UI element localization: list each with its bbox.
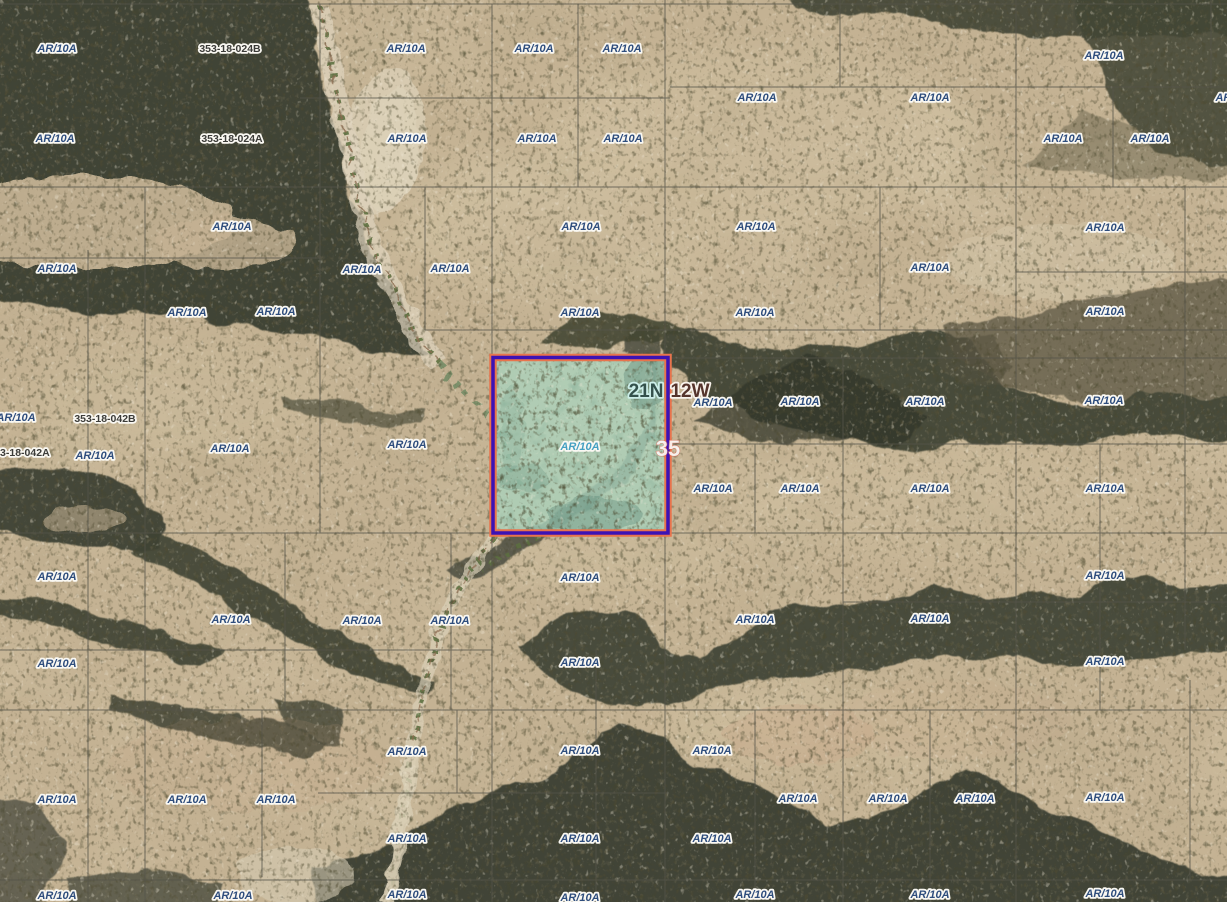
svg-text:AR/10A: AR/10A [34, 133, 74, 145]
svg-text:353-18-042A: 353-18-042A [0, 447, 50, 459]
svg-text:AR/10A: AR/10A [513, 43, 553, 55]
svg-text:AR/10A: AR/10A [735, 221, 775, 233]
svg-text:AR/10A: AR/10A [867, 793, 907, 805]
svg-text:AR/10A: AR/10A [779, 396, 819, 408]
svg-text:AR/10A: AR/10A [559, 833, 599, 845]
svg-text:353-18-024A: 353-18-024A [201, 133, 263, 145]
svg-text:AR/10A: AR/10A [734, 307, 774, 319]
svg-text:AR/10A: AR/10A [602, 133, 642, 145]
svg-text:AR/10A: AR/10A [386, 439, 426, 451]
svg-text:AR/10A: AR/10A [777, 793, 817, 805]
svg-text:AR/10A: AR/10A [560, 221, 600, 233]
svg-text:AR/10A: AR/10A [386, 889, 426, 901]
svg-text:AR/10A: AR/10A [429, 263, 469, 275]
svg-text:AR/10A: AR/10A [904, 396, 944, 408]
svg-text:AR/10A: AR/10A [559, 657, 599, 669]
svg-text:AR/10A: AR/10A [734, 614, 774, 626]
svg-text:353-18-024B: 353-18-024B [199, 43, 261, 55]
svg-text:AR/10A: AR/10A [36, 263, 76, 275]
svg-text:AR/10A: AR/10A [909, 889, 949, 901]
svg-text:AR/10A: AR/10A [559, 441, 599, 453]
svg-text:AR/10A: AR/10A [1083, 395, 1123, 407]
svg-text:21N: 21N [629, 381, 664, 402]
svg-text:AR/10A: AR/10A [1084, 570, 1124, 582]
svg-text:AR/10A: AR/10A [386, 833, 426, 845]
svg-text:AR/10A: AR/10A [341, 615, 381, 627]
svg-text:AR/10A: AR/10A [559, 745, 599, 757]
svg-text:AR/10A: AR/10A [36, 794, 76, 806]
svg-text:AR/10A: AR/10A [386, 746, 426, 758]
svg-text:AR/10A: AR/10A [909, 92, 949, 104]
svg-text:AR/10A: AR/10A [954, 793, 994, 805]
svg-text:AR/10A: AR/10A [255, 794, 295, 806]
svg-text:AR/10A: AR/10A [779, 483, 819, 495]
svg-text:AR/10A: AR/10A [909, 483, 949, 495]
svg-text:AR/10A: AR/10A [74, 450, 114, 462]
svg-text:AR/10A: AR/10A [36, 890, 76, 902]
svg-text:AR/10A: AR/10A [516, 133, 556, 145]
svg-text:AR/10A: AR/10A [211, 221, 251, 233]
svg-text:AR/10A: AR/10A [1084, 656, 1124, 668]
svg-text:AR/10A: AR/10A [736, 92, 776, 104]
svg-text:AR/10A: AR/10A [212, 890, 252, 902]
svg-text:AR/10A: AR/10A [210, 614, 250, 626]
svg-text:AR/10A: AR/10A [1084, 483, 1124, 495]
svg-text:AR/10A: AR/10A [341, 264, 381, 276]
svg-text:AR/10A: AR/10A [909, 262, 949, 274]
svg-text:AR/10A: AR/10A [166, 794, 206, 806]
svg-text:AR/10A: AR/10A [1129, 133, 1169, 145]
svg-text:AR/10A: AR/10A [1083, 50, 1123, 62]
svg-text:AR/10A: AR/10A [36, 571, 76, 583]
svg-text:AR/10A: AR/10A [429, 615, 469, 627]
svg-text:AR/10A: AR/10A [36, 43, 76, 55]
svg-text:AR/10A: AR/10A [385, 43, 425, 55]
svg-text:AR/10A: AR/10A [909, 613, 949, 625]
svg-text:AR/10A: AR/10A [1042, 133, 1082, 145]
svg-text:AR/10A: AR/10A [166, 307, 206, 319]
svg-text:AR/10A: AR/10A [386, 133, 426, 145]
svg-text:AR/10A: AR/10A [559, 572, 599, 584]
svg-text:AR/10A: AR/10A [1084, 306, 1124, 318]
svg-text:AR/10A: AR/10A [692, 397, 732, 409]
svg-text:AR/10A: AR/10A [255, 306, 295, 318]
svg-text:AR/10A: AR/10A [559, 892, 599, 902]
svg-text:35: 35 [656, 436, 680, 461]
svg-text:AR/10A: AR/10A [209, 443, 249, 455]
svg-text:AR/10A: AR/10A [36, 658, 76, 670]
svg-text:AR/10A: AR/10A [734, 889, 774, 901]
svg-text:AR/10A: AR/10A [692, 483, 732, 495]
svg-text:AR/10A: AR/10A [691, 745, 731, 757]
svg-text:AR/10A: AR/10A [601, 43, 641, 55]
svg-text:AR/10A: AR/10A [1084, 792, 1124, 804]
svg-text:AR/10A: AR/10A [1214, 92, 1227, 104]
svg-text:AR/10A: AR/10A [1084, 222, 1124, 234]
svg-text:353-18-042B: 353-18-042B [74, 413, 136, 425]
svg-text:AR/10A: AR/10A [1084, 888, 1124, 900]
svg-text:AR/10A: AR/10A [0, 412, 36, 424]
svg-text:AR/10A: AR/10A [691, 833, 731, 845]
svg-text:AR/10A: AR/10A [559, 307, 599, 319]
